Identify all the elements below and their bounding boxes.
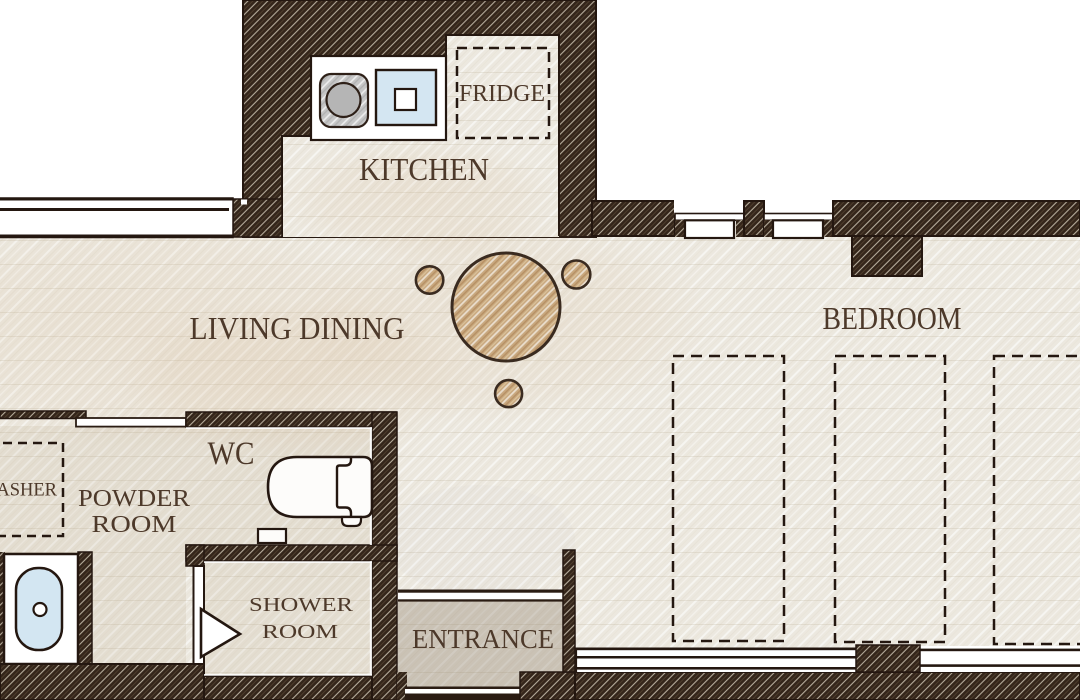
svg-text:SHOWER: SHOWER [249, 594, 354, 616]
svg-text:ROOM: ROOM [262, 621, 338, 643]
svg-text:ROOM: ROOM [92, 511, 177, 538]
svg-text:KITCHEN: KITCHEN [359, 151, 489, 187]
svg-text:BEDROOM: BEDROOM [823, 300, 962, 336]
svg-text:POWDER: POWDER [78, 485, 191, 512]
svg-text:LIVING DINING: LIVING DINING [190, 310, 405, 346]
svg-text:ENTRANCE: ENTRANCE [412, 623, 554, 654]
svg-text:FRIDGE: FRIDGE [459, 81, 545, 107]
svg-text:WASHER: WASHER [0, 480, 57, 501]
svg-text:WC: WC [208, 436, 255, 472]
